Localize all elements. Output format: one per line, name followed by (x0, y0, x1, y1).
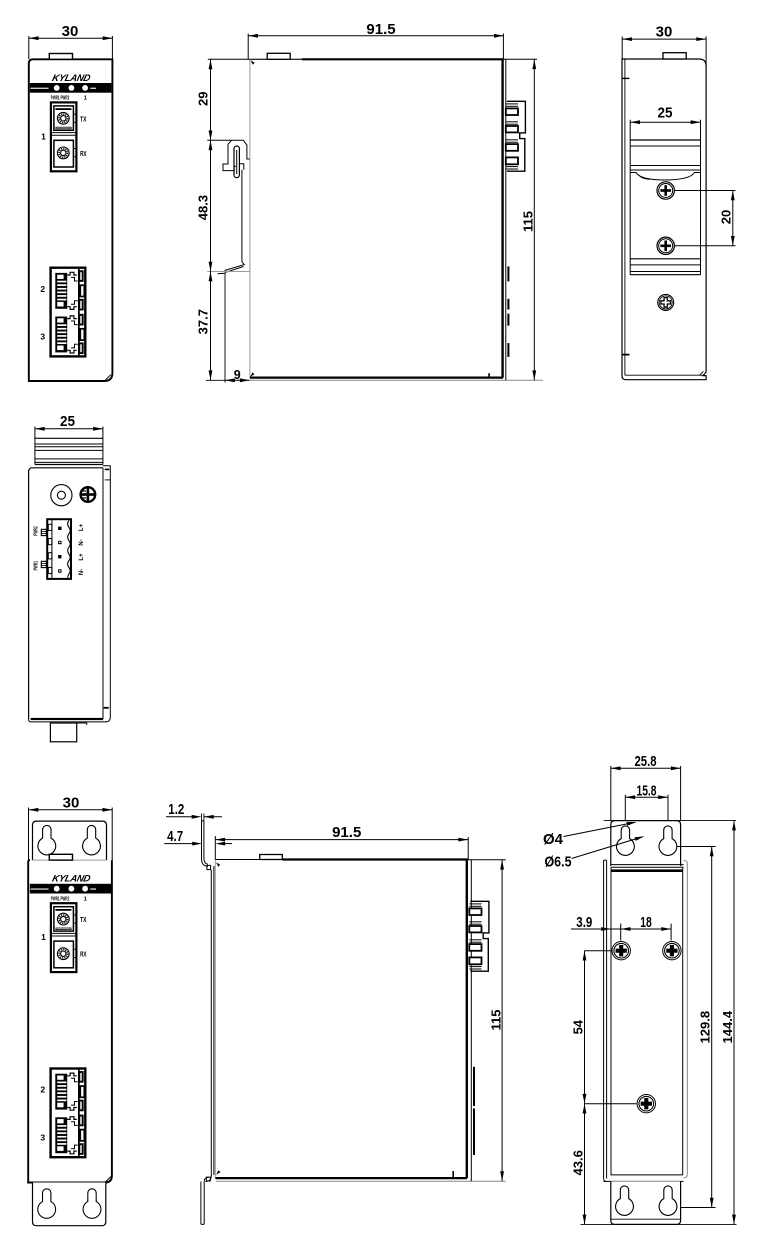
svg-text:25.8: 25.8 (635, 753, 657, 770)
svg-text:37.7: 37.7 (196, 309, 211, 334)
svg-text:30: 30 (62, 23, 79, 40)
svg-text:29: 29 (196, 92, 211, 106)
svg-text:48.3: 48.3 (196, 195, 211, 220)
svg-text:L+: L+ (79, 553, 85, 561)
svg-text:25: 25 (658, 105, 673, 122)
svg-text:PWR1: PWR1 (34, 561, 40, 571)
svg-text:PWR2: PWR2 (34, 526, 40, 536)
svg-text:25: 25 (60, 413, 75, 430)
svg-text:91.5: 91.5 (332, 824, 361, 841)
svg-text:144.4: 144.4 (720, 1010, 735, 1043)
svg-text:115: 115 (488, 1010, 503, 1031)
svg-text:3.9: 3.9 (576, 914, 592, 931)
svg-text:Ø6.5: Ø6.5 (545, 854, 572, 871)
svg-text:1.2: 1.2 (168, 801, 184, 818)
svg-text:Ø4: Ø4 (543, 831, 564, 848)
svg-text:30: 30 (656, 24, 673, 41)
svg-text:N-: N- (79, 569, 85, 575)
svg-text:43.6: 43.6 (570, 1150, 585, 1175)
svg-text:129.8: 129.8 (697, 1011, 712, 1044)
svg-text:4.7: 4.7 (167, 828, 183, 845)
svg-text:115: 115 (521, 211, 536, 232)
svg-text:54: 54 (570, 1019, 585, 1034)
svg-text:20: 20 (719, 210, 734, 224)
svg-text:30: 30 (63, 795, 80, 812)
svg-text:L+: L+ (79, 523, 85, 531)
svg-text:N-: N- (79, 539, 85, 545)
svg-text:18: 18 (640, 914, 652, 931)
